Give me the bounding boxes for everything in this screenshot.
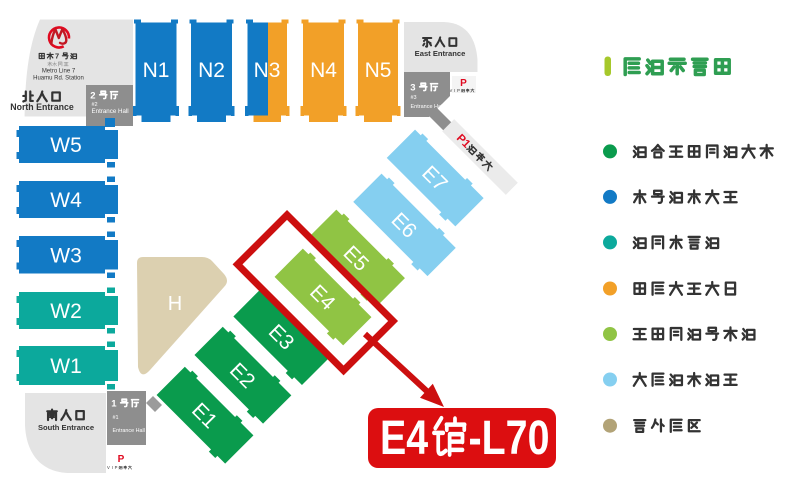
svg-text:2: 2 xyxy=(90,90,95,101)
svg-text:Entrance Hall: Entrance Hall xyxy=(92,108,129,115)
svg-text:1: 1 xyxy=(111,398,117,409)
svg-text:Huamu Rd. Station: Huamu Rd. Station xyxy=(33,76,84,82)
svg-text:N5: N5 xyxy=(365,59,392,82)
svg-text:木: 木 xyxy=(52,60,58,68)
svg-text:Entrance Hall: Entrance Hall xyxy=(411,104,444,110)
svg-text:P: P xyxy=(460,78,467,89)
svg-text:North Entrance: North Entrance xyxy=(10,102,74,112)
svg-text:3: 3 xyxy=(410,82,415,93)
svg-text:N3: N3 xyxy=(254,59,281,82)
svg-text:W1: W1 xyxy=(50,355,82,378)
svg-text:H: H xyxy=(168,293,182,315)
svg-text:N4: N4 xyxy=(310,59,337,82)
svg-text:Metro Line 7: Metro Line 7 xyxy=(42,69,76,75)
svg-text:P: P xyxy=(115,465,118,470)
svg-text:I: I xyxy=(454,88,455,93)
svg-text:E4: E4 xyxy=(380,411,429,465)
svg-text:W5: W5 xyxy=(50,134,82,157)
svg-text:East Entrance: East Entrance xyxy=(415,49,466,58)
svg-text:#1: #1 xyxy=(113,415,119,421)
svg-text:Entrance Hall: Entrance Hall xyxy=(113,428,145,434)
svg-text:N1: N1 xyxy=(143,59,170,82)
svg-text:P: P xyxy=(457,88,460,93)
svg-text:7: 7 xyxy=(55,52,59,61)
svg-text:W4: W4 xyxy=(50,189,82,212)
svg-text:W2: W2 xyxy=(50,300,82,323)
svg-text:V: V xyxy=(107,465,110,470)
svg-text:N2: N2 xyxy=(198,59,225,82)
svg-text:#3: #3 xyxy=(411,95,417,101)
svg-text:I: I xyxy=(112,465,113,470)
svg-text:-L70: -L70 xyxy=(469,411,550,465)
svg-text:South Entrance: South Entrance xyxy=(38,423,94,432)
svg-text:P: P xyxy=(118,454,125,465)
svg-text:W3: W3 xyxy=(50,244,82,267)
